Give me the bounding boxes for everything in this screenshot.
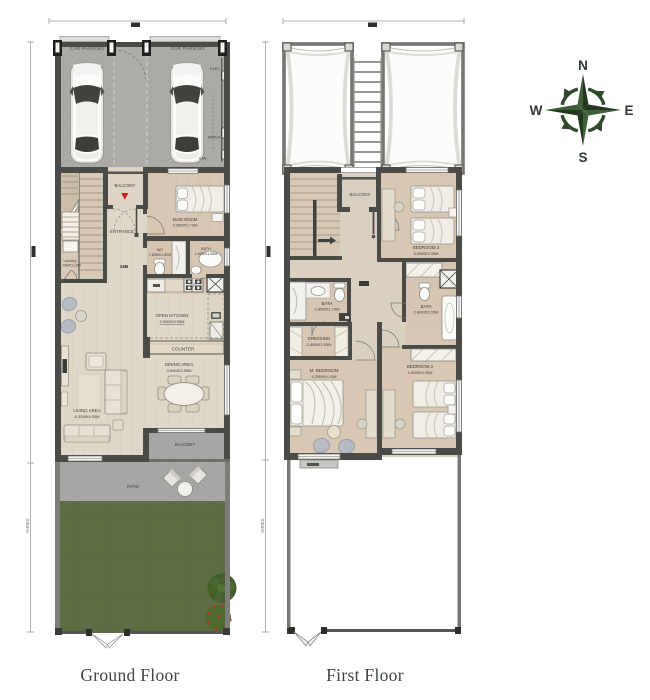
svg-text:LIVING AREA: LIVING AREA (73, 408, 100, 413)
svg-text:M. BEDROOM: M. BEDROOM (310, 368, 339, 373)
svg-text:3.59MX3.55M: 3.59MX3.55M (167, 368, 192, 373)
svg-text:VARIES: VARIES (25, 518, 30, 533)
svg-text:BEDROOM 3: BEDROOM 3 (413, 245, 440, 250)
svg-text:COUNTER: COUNTER (172, 347, 195, 352)
svg-text:BEDROOM 2: BEDROOM 2 (407, 364, 434, 369)
svg-text:Ground Floor: Ground Floor (80, 665, 179, 685)
svg-text:BALCONY: BALCONY (350, 192, 371, 197)
svg-text:WC: WC (157, 248, 164, 252)
svg-text:BALCONY: BALCONY (115, 183, 136, 188)
svg-text:BATH: BATH (322, 301, 333, 306)
svg-text:Laundry: Laundry (64, 259, 77, 263)
svg-text:1.60MX1.60M: 1.60MX1.60M (149, 253, 171, 257)
svg-text:2.80MX1.70M: 2.80MX1.70M (315, 307, 340, 312)
svg-text:BATH: BATH (421, 304, 432, 309)
svg-text:4.25MX4.10M: 4.25MX4.10M (312, 374, 337, 379)
svg-text:BALCONY: BALCONY (175, 442, 195, 447)
svg-text:WATER: WATER (208, 136, 221, 140)
svg-text:3.95MX3.55M: 3.95MX3.55M (160, 319, 185, 324)
svg-text:DINING AREA: DINING AREA (165, 362, 193, 367)
svg-text:4.60MX3.35M: 4.60MX3.35M (408, 370, 433, 375)
svg-text:N: N (578, 58, 588, 73)
svg-text:3.35MX2.70M: 3.35MX2.70M (173, 223, 198, 228)
svg-text:2.80MX2.05M: 2.80MX2.05M (414, 310, 439, 315)
svg-text:GAS: GAS (199, 157, 207, 161)
svg-text:1.60MX1.55M: 1.60MX1.55M (195, 252, 217, 256)
svg-text:W: W (530, 103, 543, 118)
svg-text:PATIO: PATIO (127, 484, 140, 489)
svg-text:2.80MX1.90M: 2.80MX1.90M (307, 342, 332, 347)
svg-text:BATH: BATH (201, 247, 211, 251)
svg-text:MAID ROOM: MAID ROOM (173, 217, 198, 222)
svg-text:First Floor: First Floor (326, 665, 404, 685)
svg-text:ENTRANCE: ENTRANCE (110, 229, 134, 234)
svg-text:S: S (578, 150, 587, 165)
svg-text:ELEC: ELEC (210, 67, 220, 71)
svg-text:15B: 15B (120, 264, 129, 269)
svg-text:OPEN KITCHEN: OPEN KITCHEN (156, 313, 189, 318)
svg-text:VARIES: VARIES (260, 518, 265, 533)
svg-text:E: E (624, 103, 633, 118)
svg-text:8.32MX4.50M: 8.32MX4.50M (75, 414, 100, 419)
svg-text:DRESSING: DRESSING (308, 336, 332, 341)
svg-text:5.00MX3.35M: 5.00MX3.35M (414, 251, 439, 256)
svg-text:1.70MX1.10M: 1.70MX1.10M (59, 264, 80, 268)
